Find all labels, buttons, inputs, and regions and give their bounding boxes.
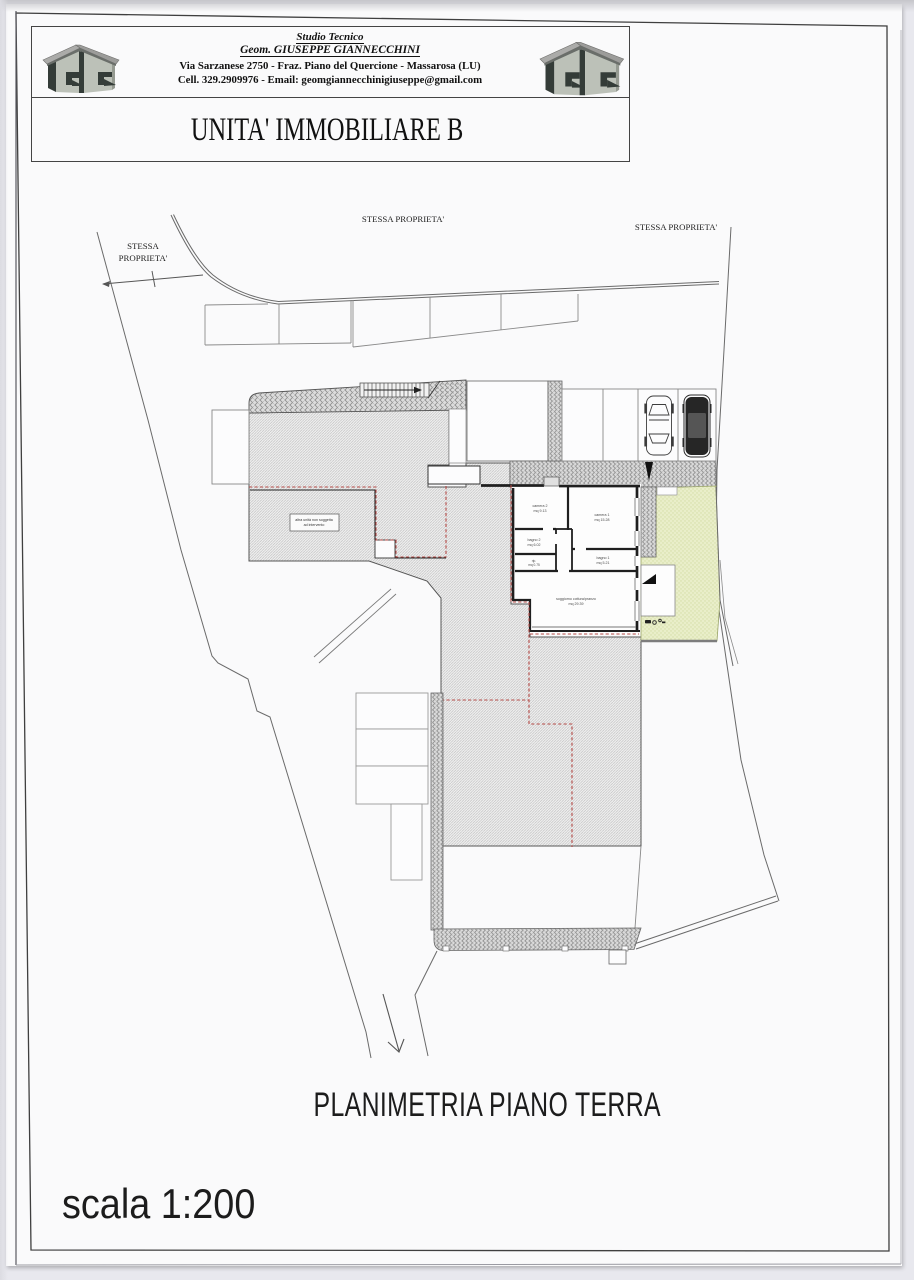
- svg-text:mq 15.28: mq 15.28: [595, 518, 610, 522]
- svg-text:altra unità non soggetta: altra unità non soggetta: [295, 518, 333, 522]
- svg-text:mq 9.13: mq 9.13: [534, 509, 547, 513]
- svg-text:STESSA PROPRIETA': STESSA PROPRIETA': [362, 214, 445, 224]
- svg-text:mq 6.02: mq 6.02: [528, 543, 541, 547]
- svg-text:camera 2: camera 2: [533, 504, 548, 508]
- svg-text:camera 1: camera 1: [595, 513, 610, 517]
- svg-text:mq 29.39: mq 29.39: [569, 602, 584, 606]
- svg-text:mq 5.21: mq 5.21: [597, 561, 610, 565]
- svg-text:ad intervento: ad intervento: [304, 523, 325, 527]
- svg-text:STESSA: STESSA: [127, 241, 159, 251]
- svg-text:bagno 2: bagno 2: [528, 538, 541, 542]
- svg-text:PROPRIETA': PROPRIETA': [119, 253, 168, 263]
- svg-text:bagno 1: bagno 1: [597, 556, 610, 560]
- svg-text:STESSA PROPRIETA': STESSA PROPRIETA': [635, 222, 718, 232]
- svg-text:mq 0.75: mq 0.75: [528, 563, 540, 567]
- svg-text:soggiorno cottura/pranzo: soggiorno cottura/pranzo: [556, 597, 596, 601]
